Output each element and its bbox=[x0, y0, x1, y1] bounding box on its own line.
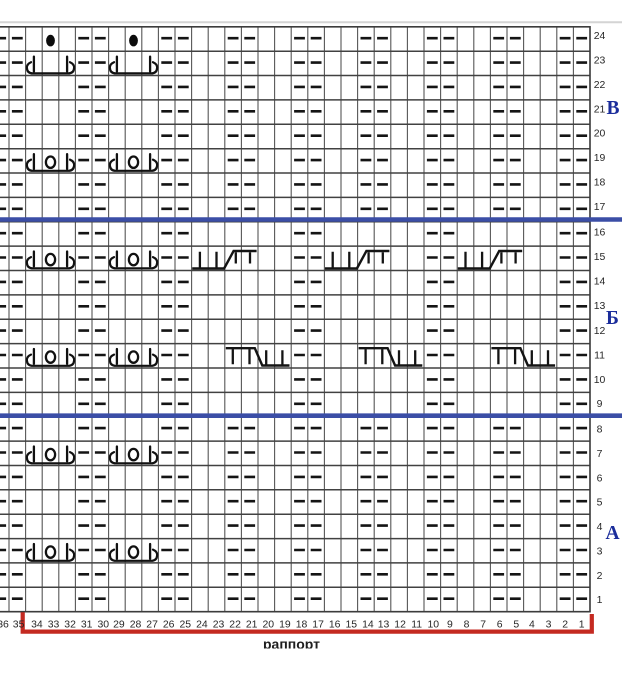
svg-text:15: 15 bbox=[345, 619, 357, 630]
svg-text:26: 26 bbox=[163, 619, 175, 630]
svg-text:19: 19 bbox=[594, 153, 606, 164]
svg-text:32: 32 bbox=[64, 619, 76, 630]
svg-text:9: 9 bbox=[447, 619, 453, 630]
svg-text:18: 18 bbox=[296, 619, 308, 630]
svg-text:1: 1 bbox=[579, 619, 585, 630]
svg-text:2: 2 bbox=[597, 571, 603, 582]
svg-text:8: 8 bbox=[464, 619, 470, 630]
svg-text:23: 23 bbox=[213, 619, 225, 630]
svg-text:Б: Б bbox=[606, 308, 619, 329]
svg-text:8: 8 bbox=[597, 425, 603, 436]
svg-text:16: 16 bbox=[329, 619, 341, 630]
svg-text:2: 2 bbox=[562, 619, 568, 630]
svg-text:12: 12 bbox=[594, 326, 606, 337]
svg-text:7: 7 bbox=[480, 619, 486, 630]
svg-text:11: 11 bbox=[594, 351, 605, 362]
svg-text:21: 21 bbox=[594, 104, 606, 115]
svg-text:18: 18 bbox=[594, 177, 606, 188]
svg-text:34: 34 bbox=[31, 619, 43, 630]
svg-text:9: 9 bbox=[597, 399, 603, 410]
svg-text:6: 6 bbox=[597, 473, 603, 484]
svg-text:20: 20 bbox=[262, 619, 274, 630]
svg-text:29: 29 bbox=[113, 619, 125, 630]
svg-text:33: 33 bbox=[48, 619, 60, 630]
svg-text:17: 17 bbox=[312, 619, 324, 630]
svg-text:23: 23 bbox=[594, 56, 606, 67]
svg-text:22: 22 bbox=[594, 80, 606, 91]
svg-text:14: 14 bbox=[362, 619, 374, 630]
svg-text:13: 13 bbox=[378, 619, 390, 630]
svg-text:24: 24 bbox=[594, 31, 606, 42]
svg-text:3: 3 bbox=[597, 547, 603, 558]
svg-text:22: 22 bbox=[229, 619, 241, 630]
svg-text:1: 1 bbox=[597, 595, 603, 606]
svg-text:21: 21 bbox=[246, 619, 258, 630]
svg-text:12: 12 bbox=[394, 619, 406, 630]
svg-text:13: 13 bbox=[594, 301, 606, 312]
svg-text:31: 31 bbox=[81, 619, 93, 630]
svg-text:17: 17 bbox=[594, 202, 606, 213]
svg-text:11: 11 bbox=[411, 619, 422, 630]
svg-text:4: 4 bbox=[597, 522, 603, 533]
svg-text:19: 19 bbox=[279, 619, 291, 630]
svg-text:7: 7 bbox=[597, 449, 603, 460]
svg-text:20: 20 bbox=[594, 129, 606, 140]
svg-text:10: 10 bbox=[427, 619, 439, 630]
svg-text:14: 14 bbox=[594, 276, 606, 287]
svg-text:27: 27 bbox=[146, 619, 158, 630]
svg-text:16: 16 bbox=[594, 228, 606, 239]
svg-text:4: 4 bbox=[529, 619, 535, 630]
svg-text:В: В bbox=[606, 98, 619, 119]
svg-text:15: 15 bbox=[594, 252, 606, 263]
svg-text:25: 25 bbox=[179, 619, 191, 630]
svg-text:5: 5 bbox=[513, 619, 519, 630]
svg-text:А: А bbox=[605, 523, 619, 544]
svg-text:5: 5 bbox=[597, 498, 603, 509]
svg-text:24: 24 bbox=[196, 619, 208, 630]
svg-text:6: 6 bbox=[497, 619, 503, 630]
svg-text:10: 10 bbox=[594, 375, 606, 386]
svg-text:35: 35 bbox=[13, 619, 25, 630]
svg-text:30: 30 bbox=[97, 619, 109, 630]
svg-text:36: 36 bbox=[0, 619, 9, 630]
svg-text:3: 3 bbox=[546, 619, 552, 630]
svg-text:28: 28 bbox=[130, 619, 142, 630]
